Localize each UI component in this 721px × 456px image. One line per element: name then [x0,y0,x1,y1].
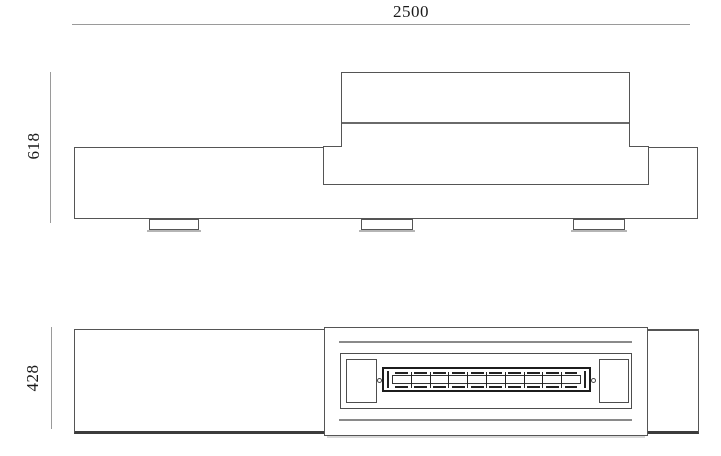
burner-segment [430,372,449,388]
plan-right-section [647,329,699,434]
front-foot-center [361,219,413,230]
burner-segment [486,372,505,388]
drawing-sheet: 2500 618 428 [0,0,721,456]
burner-segment [524,372,543,388]
burner-end-bracket-left [387,371,389,388]
fireplace-insert-frame [340,353,632,409]
insert-side-box-right [599,359,629,403]
plan-left-section [74,329,325,434]
plan-groove-bottom [339,419,632,421]
dimension-depth-label: 428 [23,348,43,408]
front-foot-left [149,219,199,230]
burner-segment [448,372,467,388]
burner-segment [411,372,430,388]
dimension-width-label: 2500 [372,2,450,22]
dimension-width-line [72,24,690,25]
front-foot-left-shadow [147,230,201,232]
front-middle-shelf [323,146,649,185]
dimension-height-label: 618 [24,116,44,176]
plan-center-shadow [327,436,645,438]
burner-segment [393,372,411,388]
burner-end-bracket-right [584,371,586,388]
plan-center-section [324,327,648,436]
burner-segment [467,372,486,388]
burner-segments [393,372,580,388]
front-back-panel-divider [342,122,629,124]
burner-segment [505,372,524,388]
burner-segment [561,372,580,388]
insert-side-box-left [346,359,377,403]
front-foot-center-shadow [359,230,415,232]
front-back-panel [341,72,630,147]
dimension-height-line [50,72,51,223]
screw-icon-right [591,378,596,383]
front-foot-right-shadow [571,230,627,232]
burner-segment [542,372,561,388]
linear-burner [382,367,591,392]
plan-groove-top [339,341,632,343]
dimension-depth-line [51,327,52,429]
front-foot-right [573,219,625,230]
